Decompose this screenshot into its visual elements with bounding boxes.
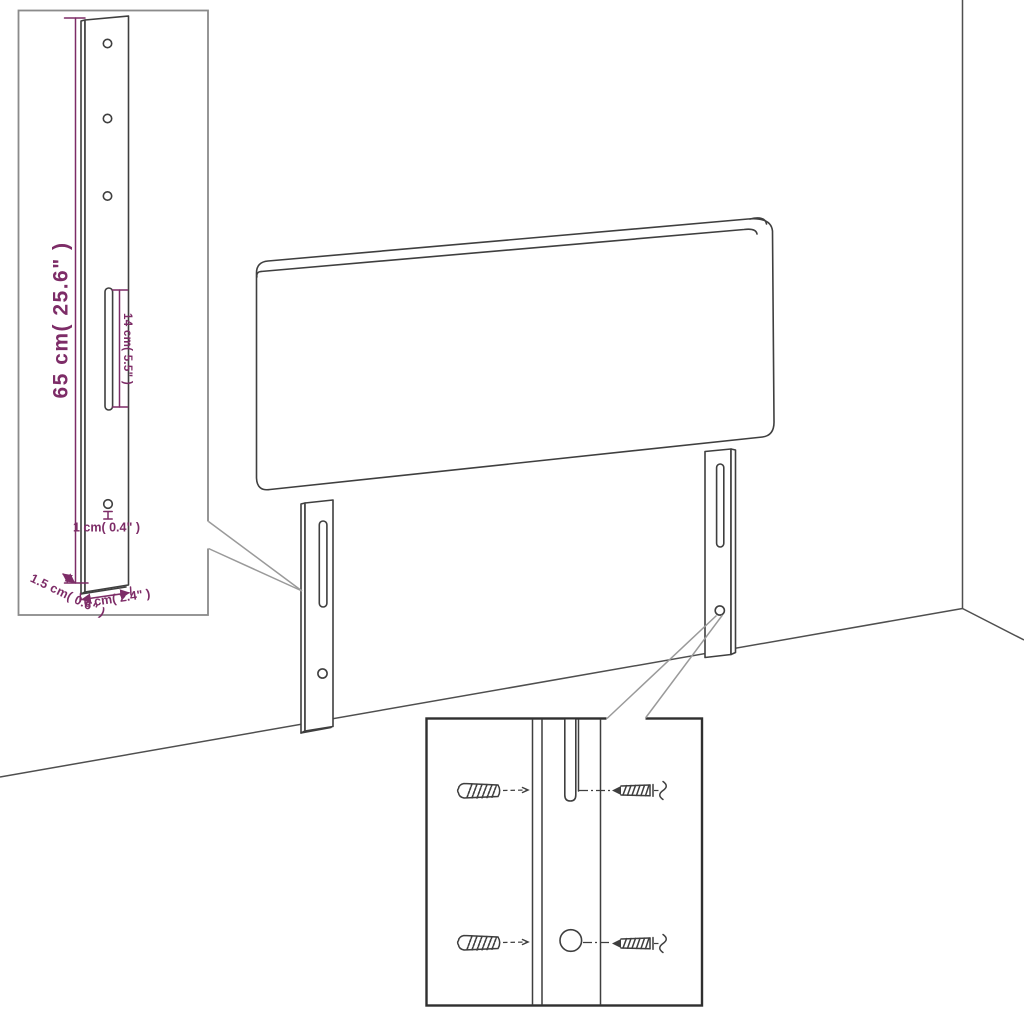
dim-hole-label: 1 cm( 0.4" ) (73, 520, 140, 534)
detail-hole-3 (103, 192, 111, 200)
leg-detail-inset: 65 cm( 25.6" ) 14 cm( 5.5" ) 1 cm( 0.4" … (19, 11, 209, 620)
callout-line (607, 616, 717, 719)
leg-right-slot (717, 464, 724, 547)
detail-slot (105, 288, 113, 410)
headboard-diagram: 65 cm( 25.6" ) 14 cm( 5.5" ) 1 cm( 0.4" … (0, 0, 1024, 1024)
detail-hole-2 (103, 114, 111, 122)
headboard-leg-right (705, 449, 736, 658)
hardware-slot (565, 720, 576, 802)
detail-hole-1 (103, 39, 111, 47)
headboard-outline (257, 219, 775, 490)
callout-wedge-left (209, 522, 303, 592)
hardware-hole (560, 930, 582, 952)
callout-line (209, 522, 303, 592)
detail-small-hole (104, 500, 113, 509)
callout-line (646, 615, 723, 718)
leg-left-slot (319, 521, 327, 607)
callout-line (209, 549, 303, 592)
dim-slot-label: 14 cm( 5.5" ) (121, 313, 133, 385)
leg-right-screw-hole (715, 606, 724, 615)
headboard-panel (257, 218, 775, 490)
dim-height-label: 65 cm( 25.6" ) (49, 241, 72, 398)
hardware-detail-inset (427, 719, 703, 1006)
leg-detail-drawing (81, 16, 129, 594)
leg-left-screw-hole (318, 669, 327, 678)
diagram-canvas: 65 cm( 25.6" ) 14 cm( 5.5" ) 1 cm( 0.4" … (0, 0, 1024, 1024)
leg-right-side-face (731, 449, 736, 655)
dim-width-tick-left (80, 594, 81, 602)
headboard-leg-left (301, 500, 333, 733)
